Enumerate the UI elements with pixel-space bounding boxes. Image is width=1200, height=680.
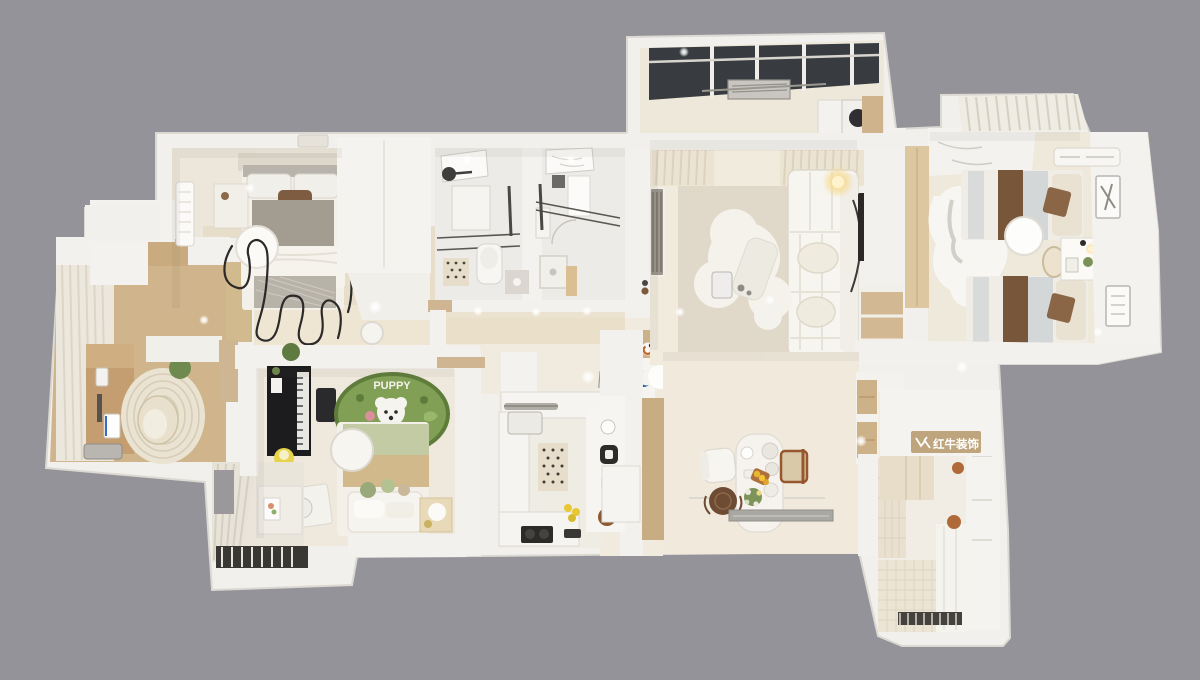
svg-text:PUPPY: PUPPY	[373, 380, 411, 392]
svg-text:红牛装饰: 红牛装饰	[933, 437, 979, 451]
